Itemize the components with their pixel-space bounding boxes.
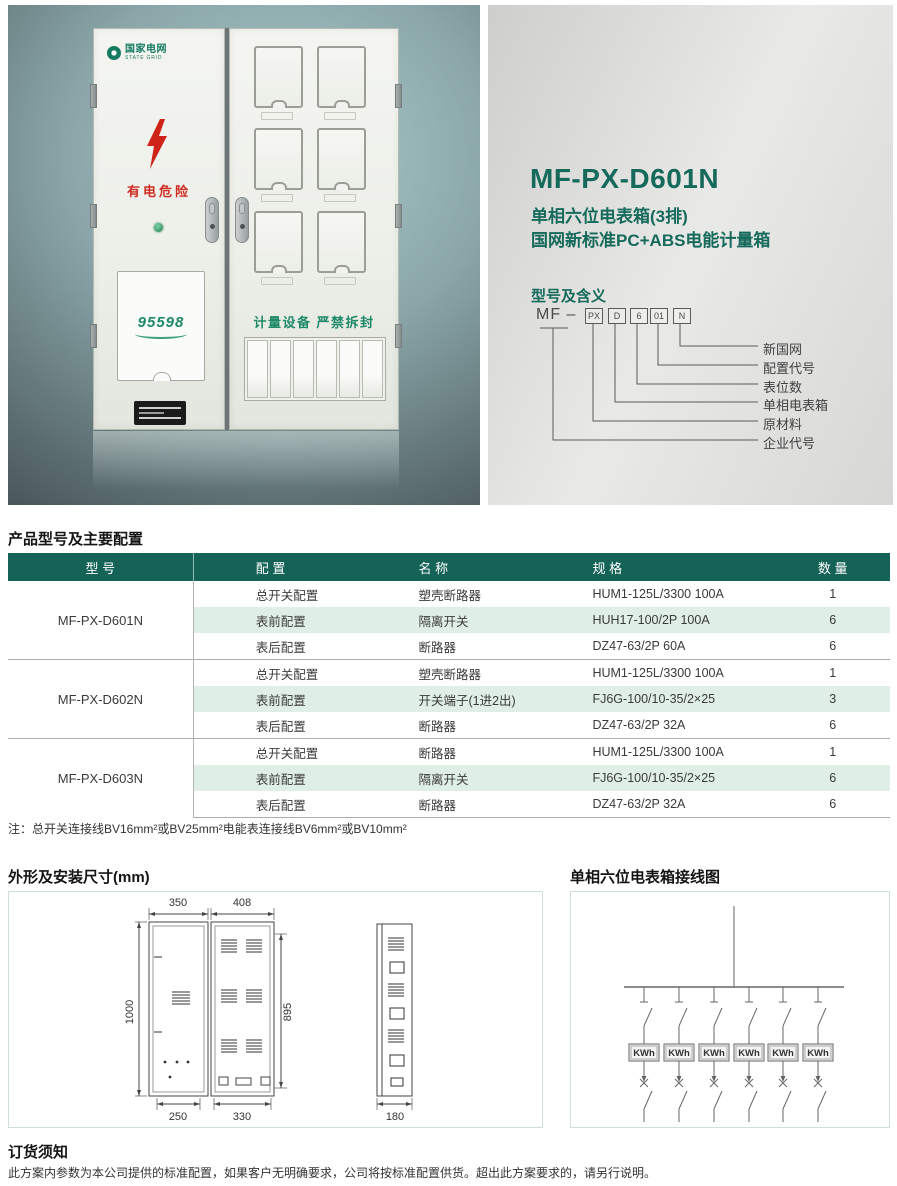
spec-cell: DZ47-63/2P 60A (572, 633, 775, 660)
dim-180: 180 (386, 1111, 404, 1123)
code-label: 企业代号 (763, 433, 815, 452)
product-subtitle-2: 国网新标准PC+ABS电能计量箱 (531, 226, 770, 251)
col-header-config: 配 置 (193, 553, 400, 581)
meter-box-left-door: 国家电网 STATE GRID 有电危险 95598 (93, 28, 225, 430)
brand-subname: STATE GRID (125, 55, 167, 61)
lightning-bolt-icon (146, 119, 172, 169)
name-cell: 断路器 (400, 633, 572, 660)
product-subtitle-1: 单相六位电表箱(3排) (531, 202, 688, 227)
state-grid-emblem-icon (107, 46, 121, 60)
qty-cell: 1 (775, 581, 890, 607)
qty-cell: 1 (775, 739, 890, 766)
meter-window-label (261, 112, 293, 120)
meter-window (254, 46, 303, 108)
meter-window (317, 46, 366, 108)
meter-window-label (324, 194, 356, 202)
dim-895: 895 (282, 1003, 294, 1021)
spec-cell: HUH17-100/2P 100A (572, 607, 775, 633)
service-window: 95598 (117, 271, 205, 381)
kwh-meter-label: KWh (738, 1048, 760, 1059)
meter-box-right-door: 计量设备 严禁拆封 (229, 28, 399, 430)
hinge-icon (90, 84, 97, 108)
col-header-name: 名 称 (400, 553, 572, 581)
spec-cell: FJ6G-100/10-35/2×25 (572, 765, 775, 791)
danger-label: 有电危险 (94, 181, 224, 200)
spec-cell: DZ47-63/2P 32A (572, 712, 775, 739)
model-code-diagram: MF – PX D 6 01 N 新国网 配置代号 表位数 单相电表箱 原材料 … (500, 300, 897, 470)
name-cell: 塑壳断路器 (400, 660, 572, 687)
table-note: 注：总开关连接线BV16mm²或BV25mm²电能表连接线BV6mm²或BV10… (8, 820, 407, 837)
code-label: 配置代号 (763, 358, 815, 377)
qty-cell: 1 (775, 660, 890, 687)
hinge-icon (395, 204, 402, 228)
model-cell: MF-PX-D602N (8, 660, 193, 739)
meter-window-label (324, 112, 356, 120)
code-prefix: MF – (536, 306, 576, 324)
col-header-model: 型 号 (8, 553, 193, 581)
name-cell: 断路器 (400, 712, 572, 739)
config-cell: 表后配置 (193, 791, 400, 818)
spec-cell: HUM1-125L/3300 100A (572, 660, 775, 687)
config-table-wrap: 型 号 配 置 名 称 规 格 数 量 MF-PX-D601N 总开关配置 塑壳… (8, 553, 890, 818)
breaker-window (247, 340, 268, 398)
breaker-window (293, 340, 314, 398)
spec-cell: HUM1-125L/3300 100A (572, 581, 775, 607)
name-cell: 隔离开关 (400, 607, 572, 633)
qty-cell: 6 (775, 791, 890, 818)
model-cell: MF-PX-D601N (8, 581, 193, 660)
meter-window (317, 128, 366, 190)
table-header-row: 型 号 配 置 名 称 规 格 数 量 (8, 553, 890, 581)
kwh-meter-label: KWh (772, 1048, 794, 1059)
catalog-page: 国家电网 STATE GRID 有电危险 95598 (0, 0, 897, 1186)
code-label: 原材料 (763, 414, 802, 433)
nameplate-line (139, 407, 181, 409)
qty-cell: 3 (775, 686, 890, 712)
meter-window (317, 211, 366, 273)
config-cell: 表后配置 (193, 712, 400, 739)
brand-name: 国家电网 (125, 45, 167, 55)
keyhole-icon (240, 224, 245, 229)
wiring-heading: 单相六位电表箱接线图 (570, 866, 720, 887)
config-cell: 表前配置 (193, 607, 400, 633)
hinge-icon (90, 204, 97, 228)
reflection (93, 431, 399, 489)
code-label: 单相电表箱 (763, 395, 828, 414)
code-diagram-lines (500, 300, 897, 470)
hinge-icon (90, 324, 97, 348)
qty-cell: 6 (775, 633, 890, 660)
config-cell: 表后配置 (193, 633, 400, 660)
keyhole-icon (210, 224, 215, 229)
product-model-title: MF-PX-D601N (530, 163, 719, 195)
meter-window-label (261, 277, 293, 285)
table-row: MF-PX-D601N 总开关配置 塑壳断路器 HUM1-125L/3300 1… (8, 581, 890, 607)
spec-cell: DZ47-63/2P 32A (572, 791, 775, 818)
breaker-window (362, 340, 383, 398)
code-segment: 6 (630, 308, 648, 324)
nameplate-line (139, 417, 181, 419)
name-cell: 塑壳断路器 (400, 581, 572, 607)
wiring-panel: KWh KWh (570, 891, 890, 1128)
product-photo: 国家电网 STATE GRID 有电危险 95598 (8, 5, 480, 505)
indicator-dot-icon (154, 223, 163, 232)
nameplate-line (139, 412, 164, 414)
code-label: 新国网 (763, 339, 802, 358)
meter-box: 国家电网 STATE GRID 有电危险 95598 (93, 28, 399, 430)
code-segment: D (608, 308, 626, 324)
lock-slot-icon (239, 203, 245, 214)
breaker-window (316, 340, 337, 398)
config-cell: 表前配置 (193, 686, 400, 712)
kwh-meter-label: KWh (703, 1048, 725, 1059)
breaker-window (270, 340, 291, 398)
left-door-lock (205, 197, 219, 243)
table-row: MF-PX-D603N 总开关配置 断路器 HUM1-125L/3300 100… (8, 739, 890, 766)
code-segment: 01 (650, 308, 668, 324)
dim-350: 350 (169, 897, 187, 909)
right-door-lock (235, 197, 249, 243)
name-cell: 开关端子(1进2出) (400, 686, 572, 712)
meter-window (254, 128, 303, 190)
code-segment: N (673, 308, 691, 324)
dimension-drawing: 350 408 1000 895 250 330 180 (9, 892, 542, 1127)
dimensions-panel: 350 408 1000 895 250 330 180 (8, 891, 543, 1128)
qty-cell: 6 (775, 712, 890, 739)
meter-window-label (261, 194, 293, 202)
config-table: 型 号 配 置 名 称 规 格 数 量 MF-PX-D601N 总开关配置 塑壳… (8, 553, 890, 818)
hinge-icon (395, 84, 402, 108)
table-row: MF-PX-D602N 总开关配置 塑壳断路器 HUM1-125L/3300 1… (8, 660, 890, 687)
kwh-meter-label: KWh (807, 1048, 829, 1059)
kwh-meter-label: KWh (668, 1048, 690, 1059)
product-info-panel: MF-PX-D601N 单相六位电表箱(3排) 国网新标准PC+ABS电能计量箱… (488, 5, 893, 505)
dim-250: 250 (169, 1111, 187, 1123)
qty-cell: 6 (775, 765, 890, 791)
kwh-meter-label: KWh (633, 1048, 655, 1059)
lock-slot-icon (209, 203, 215, 214)
code-segment: PX (585, 308, 603, 324)
name-cell: 断路器 (400, 791, 572, 818)
config-cell: 总开关配置 (193, 739, 400, 766)
notch-icon (153, 372, 171, 381)
order-notice-heading: 订货须知 (8, 1141, 68, 1162)
spec-cell: FJ6G-100/10-35/2×25 (572, 686, 775, 712)
config-section-heading: 产品型号及主要配置 (8, 528, 143, 549)
dim-1000: 1000 (124, 1000, 136, 1024)
seal-label: 计量设备 严禁拆封 (230, 312, 398, 331)
code-label: 表位数 (763, 377, 802, 396)
breaker-window (339, 340, 360, 398)
nameplate (134, 401, 186, 425)
model-cell: MF-PX-D603N (8, 739, 193, 818)
qty-cell: 6 (775, 607, 890, 633)
meter-window-label (324, 277, 356, 285)
meter-window (254, 211, 303, 273)
name-cell: 断路器 (400, 739, 572, 766)
dim-408: 408 (233, 897, 251, 909)
config-cell: 表前配置 (193, 765, 400, 791)
name-cell: 隔离开关 (400, 765, 572, 791)
order-notice-text: 此方案内参数为本公司提供的标准配置，如果客户无明确要求，公司将按标准配置供货。超… (8, 1164, 890, 1181)
state-grid-logo: 国家电网 STATE GRID (107, 45, 167, 61)
spec-cell: HUM1-125L/3300 100A (572, 739, 775, 766)
dimensions-heading: 外形及安装尺寸(mm) (8, 866, 150, 887)
breaker-strip (244, 337, 386, 401)
col-header-qty: 数 量 (775, 553, 890, 581)
dim-330: 330 (233, 1111, 251, 1123)
col-header-spec: 规 格 (572, 553, 775, 581)
wiring-diagram: KWh KWh (571, 892, 889, 1127)
config-cell: 总开关配置 (193, 660, 400, 687)
config-cell: 总开关配置 (193, 581, 400, 607)
service-number: 95598 (118, 314, 204, 331)
